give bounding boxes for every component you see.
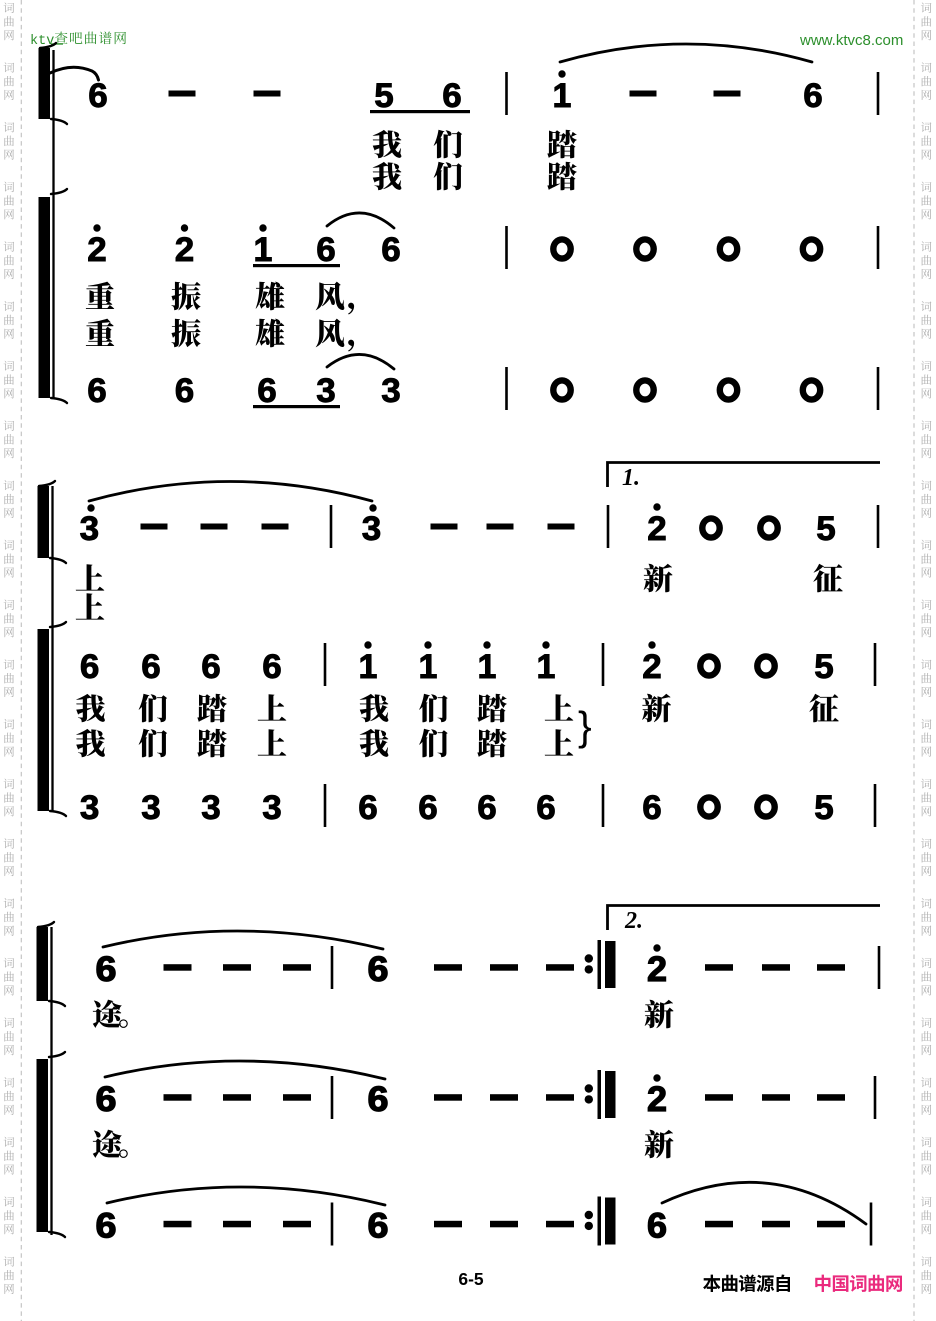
svg-text:5: 5 <box>814 648 834 686</box>
svg-text:3: 3 <box>262 789 282 827</box>
svg-text:6: 6 <box>201 648 221 686</box>
svg-text:1: 1 <box>254 231 273 269</box>
svg-text:5: 5 <box>816 510 836 548</box>
svg-text:2: 2 <box>647 1080 667 1119</box>
svg-text:6-5: 6-5 <box>458 1269 484 1289</box>
svg-text:3: 3 <box>141 789 161 827</box>
svg-text:2.: 2. <box>624 908 643 934</box>
svg-text:6: 6 <box>642 789 662 827</box>
svg-text:5: 5 <box>814 789 834 827</box>
svg-text:6: 6 <box>368 1207 389 1246</box>
svg-text:6: 6 <box>381 231 401 269</box>
svg-text:1: 1 <box>537 648 556 686</box>
svg-text:6: 6 <box>368 1080 389 1119</box>
svg-text:3: 3 <box>80 789 100 827</box>
svg-text:6: 6 <box>477 789 497 827</box>
svg-text:1: 1 <box>419 648 438 686</box>
svg-text:6: 6 <box>80 648 100 686</box>
svg-text:1: 1 <box>478 648 497 686</box>
svg-text:6: 6 <box>87 372 107 410</box>
svg-text:}: } <box>578 703 592 749</box>
svg-text:6: 6 <box>175 372 195 410</box>
svg-text:2: 2 <box>175 231 195 269</box>
svg-text:6: 6 <box>368 950 389 989</box>
svg-text:6: 6 <box>803 77 823 115</box>
svg-text:2: 2 <box>647 950 667 989</box>
svg-text:6: 6 <box>358 789 378 827</box>
svg-text:6: 6 <box>96 1080 117 1119</box>
svg-text:6: 6 <box>96 950 117 989</box>
svg-text:1.: 1. <box>622 465 640 491</box>
svg-text:3: 3 <box>362 510 382 548</box>
svg-text:www.ktvc8.com: www.ktvc8.com <box>799 32 903 49</box>
svg-text:5: 5 <box>374 77 394 115</box>
svg-text:6: 6 <box>141 648 161 686</box>
svg-text:6: 6 <box>88 77 108 115</box>
svg-text:6: 6 <box>536 789 556 827</box>
svg-text:2: 2 <box>647 510 667 548</box>
svg-text:2: 2 <box>87 231 107 269</box>
svg-text:6: 6 <box>647 1207 667 1246</box>
svg-text:2: 2 <box>642 648 662 686</box>
svg-text:1: 1 <box>359 648 378 686</box>
svg-text:6: 6 <box>418 789 438 827</box>
svg-text:6: 6 <box>316 231 336 269</box>
svg-text:3: 3 <box>201 789 221 827</box>
svg-text:3: 3 <box>381 372 401 410</box>
svg-text:6: 6 <box>257 372 277 410</box>
svg-text:6: 6 <box>442 77 462 115</box>
svg-text:6: 6 <box>262 648 282 686</box>
svg-text:3: 3 <box>80 510 100 548</box>
svg-text:6: 6 <box>96 1207 117 1246</box>
svg-text:3: 3 <box>316 372 336 410</box>
svg-text:1: 1 <box>553 77 572 115</box>
